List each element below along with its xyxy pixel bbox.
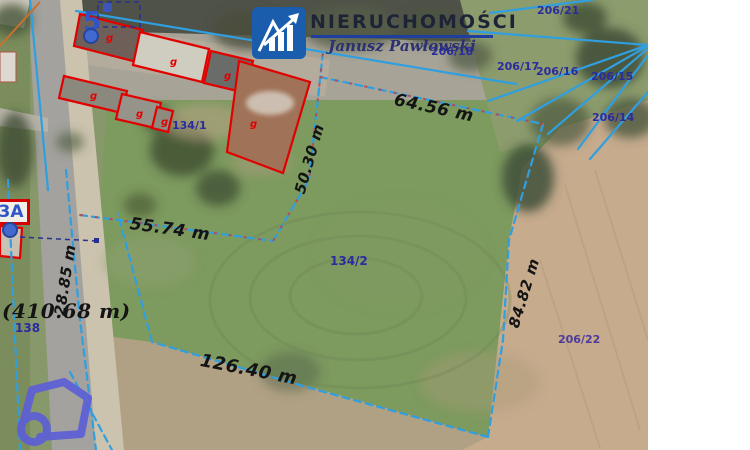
satellite-map: 64.56 m 50.30 m 55.74 m 28.85 m (410.68 … xyxy=(0,0,648,450)
parcel-label-134-2: 134/2 xyxy=(330,255,368,267)
building-mark: g xyxy=(106,34,113,44)
parcel-label-134-1: 134/1 xyxy=(172,120,207,131)
survey-point xyxy=(94,238,99,243)
roof-highlight xyxy=(246,91,294,115)
parcel-label-206-17: 206/17 xyxy=(497,61,539,72)
portal-house-logo xyxy=(4,378,108,448)
agent-name: Janusz Pawłowski xyxy=(311,39,493,54)
address-pin xyxy=(83,28,99,44)
building-mark: g xyxy=(250,120,257,130)
building-mark: g xyxy=(90,92,97,102)
parcel-label-206-14: 206/14 xyxy=(592,112,634,123)
chart-growth-icon xyxy=(252,7,306,59)
address-pin xyxy=(2,222,18,238)
address-label-3a: 3A xyxy=(0,202,24,222)
measurement-total-perimeter: (410.68 m) xyxy=(2,301,131,321)
building-mark: g xyxy=(136,110,143,120)
parcel-label-138: 138 xyxy=(15,322,40,334)
agency-name: NIERUCHOMOŚCI xyxy=(310,13,494,32)
building-mark: g xyxy=(170,58,177,68)
building-mark: g xyxy=(224,72,231,82)
parcel-label-206-21: 206/21 xyxy=(537,5,579,16)
address-box-3a: 3A xyxy=(0,199,30,225)
west-house xyxy=(0,52,16,82)
parcel-label-206-15: 206/15 xyxy=(591,71,633,82)
parcel-label-206-22: 206/22 xyxy=(558,334,600,345)
building-mark: g xyxy=(161,118,168,128)
agency-logo xyxy=(252,7,306,59)
listing-image: 64.56 m 50.30 m 55.74 m 28.85 m (410.68 … xyxy=(0,0,750,450)
parcel-label-206-16: 206/16 xyxy=(536,66,578,77)
poi-icon xyxy=(103,3,112,12)
